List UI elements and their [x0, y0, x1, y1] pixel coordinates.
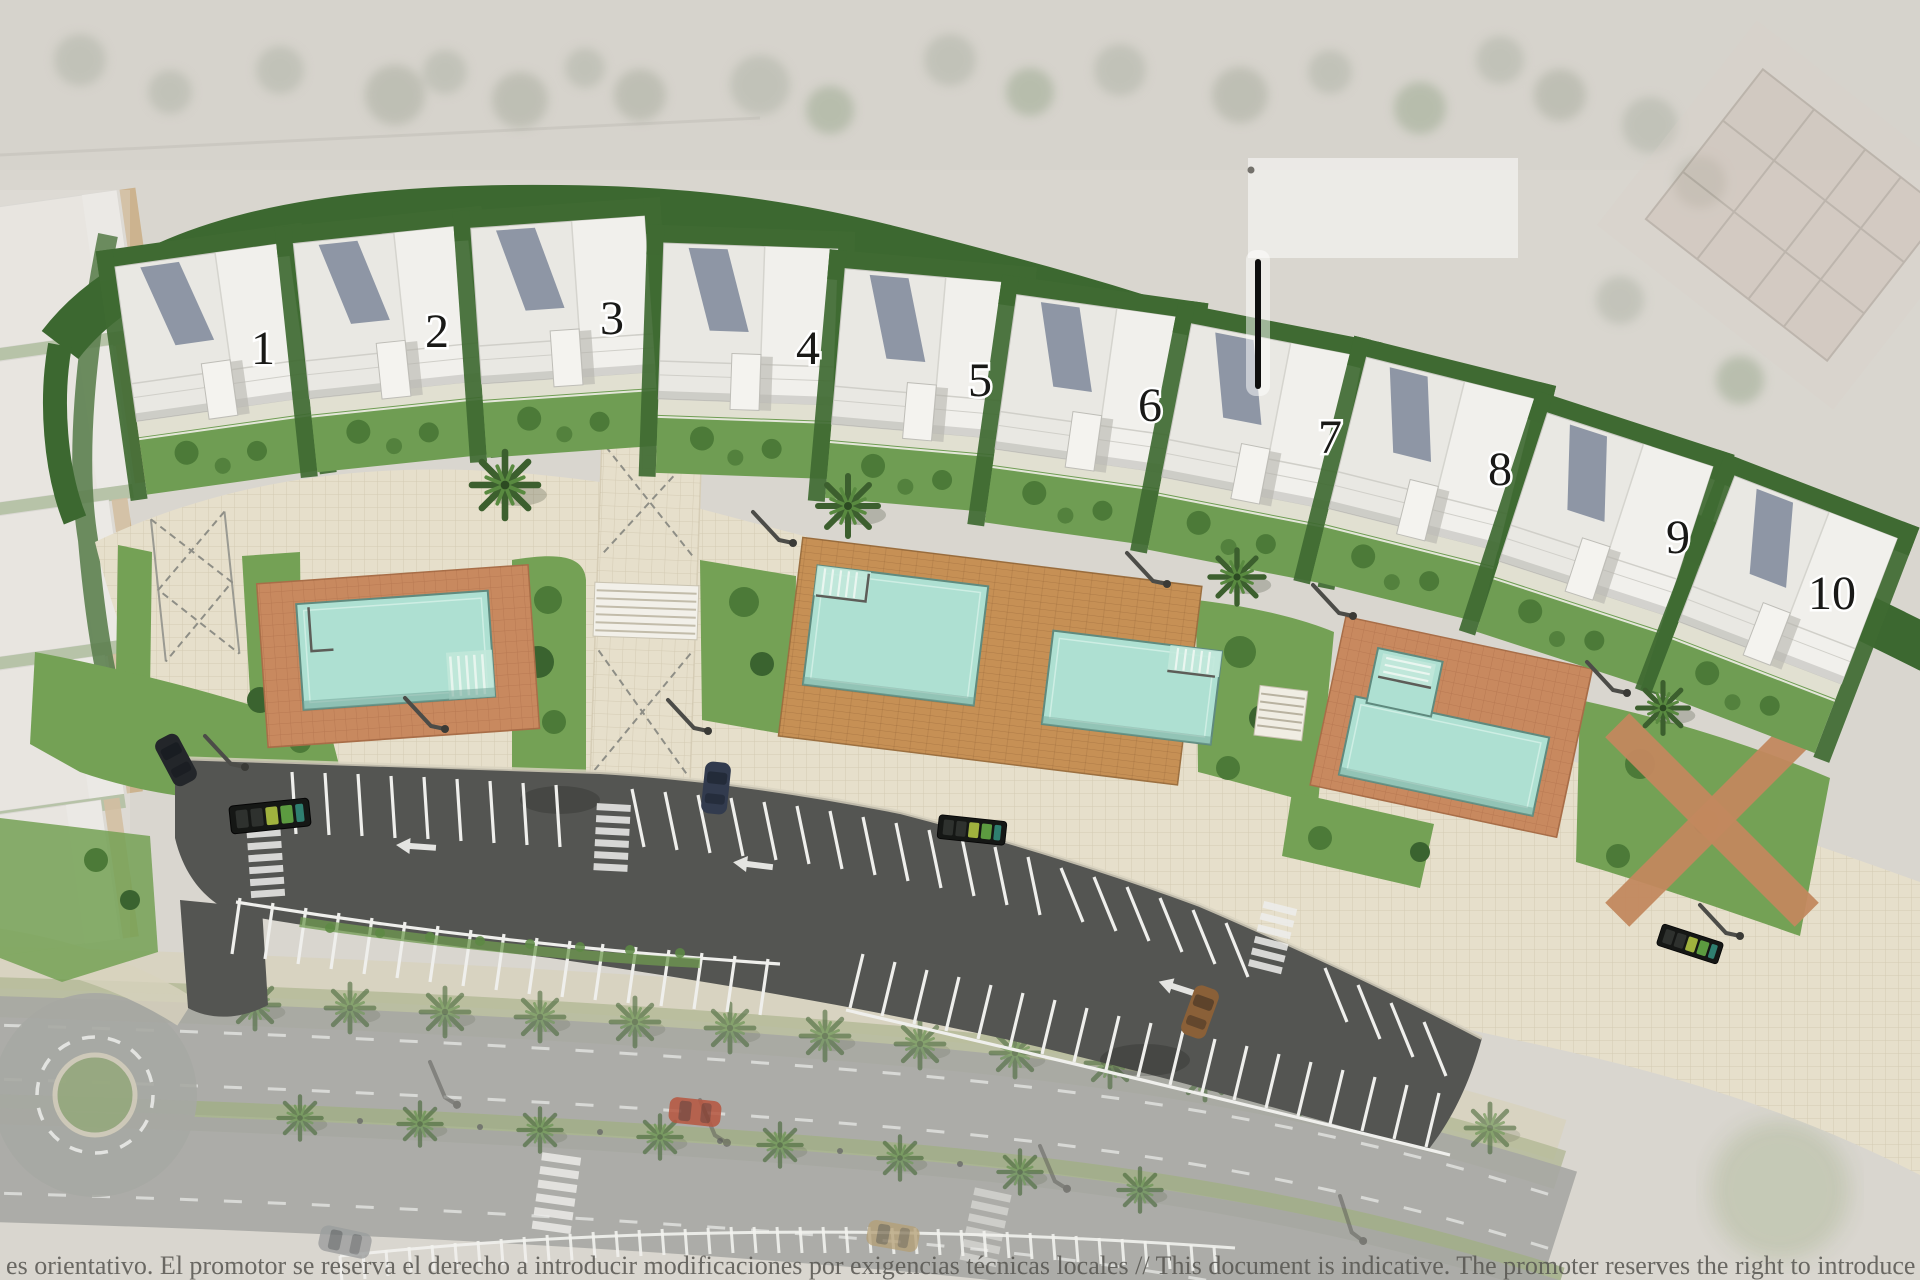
- building-number-7: 7: [1318, 411, 1342, 464]
- disclaimer-text: ano es orientativo. El promotor se reser…: [0, 1251, 1920, 1280]
- building-number-10: 10: [1808, 567, 1856, 620]
- leader-dot: [1248, 167, 1255, 174]
- deck-stair: [1254, 685, 1308, 740]
- pool-area-left: [257, 565, 540, 748]
- roundabout-island: [55, 1055, 135, 1135]
- building-number-4: 4: [796, 322, 820, 375]
- building-number-9: 9: [1666, 511, 1690, 564]
- faded-green-corner: [1710, 1120, 1850, 1260]
- site-plan-image: 1 2 3 4 5 6 7 8 9 10 ano es orientativo.…: [0, 0, 1920, 1280]
- building-number-3: 3: [600, 292, 624, 345]
- parking-entry-road: [180, 900, 268, 1017]
- building-number-5: 5: [968, 354, 992, 407]
- car-navy: [700, 761, 731, 815]
- building-number-6: 6: [1138, 379, 1162, 432]
- car-red: [668, 1096, 722, 1127]
- central-walkway-stairs: [588, 436, 704, 783]
- tree-shadow: [520, 786, 600, 814]
- building-number-8: 8: [1488, 443, 1512, 496]
- site-plan-svg: 1 2 3 4 5 6 7 8 9 10 ano es orientativo.…: [0, 0, 1920, 1280]
- erased-label-box: [1248, 158, 1518, 258]
- building-number-2: 2: [425, 305, 449, 358]
- building-number-1: 1: [251, 322, 275, 375]
